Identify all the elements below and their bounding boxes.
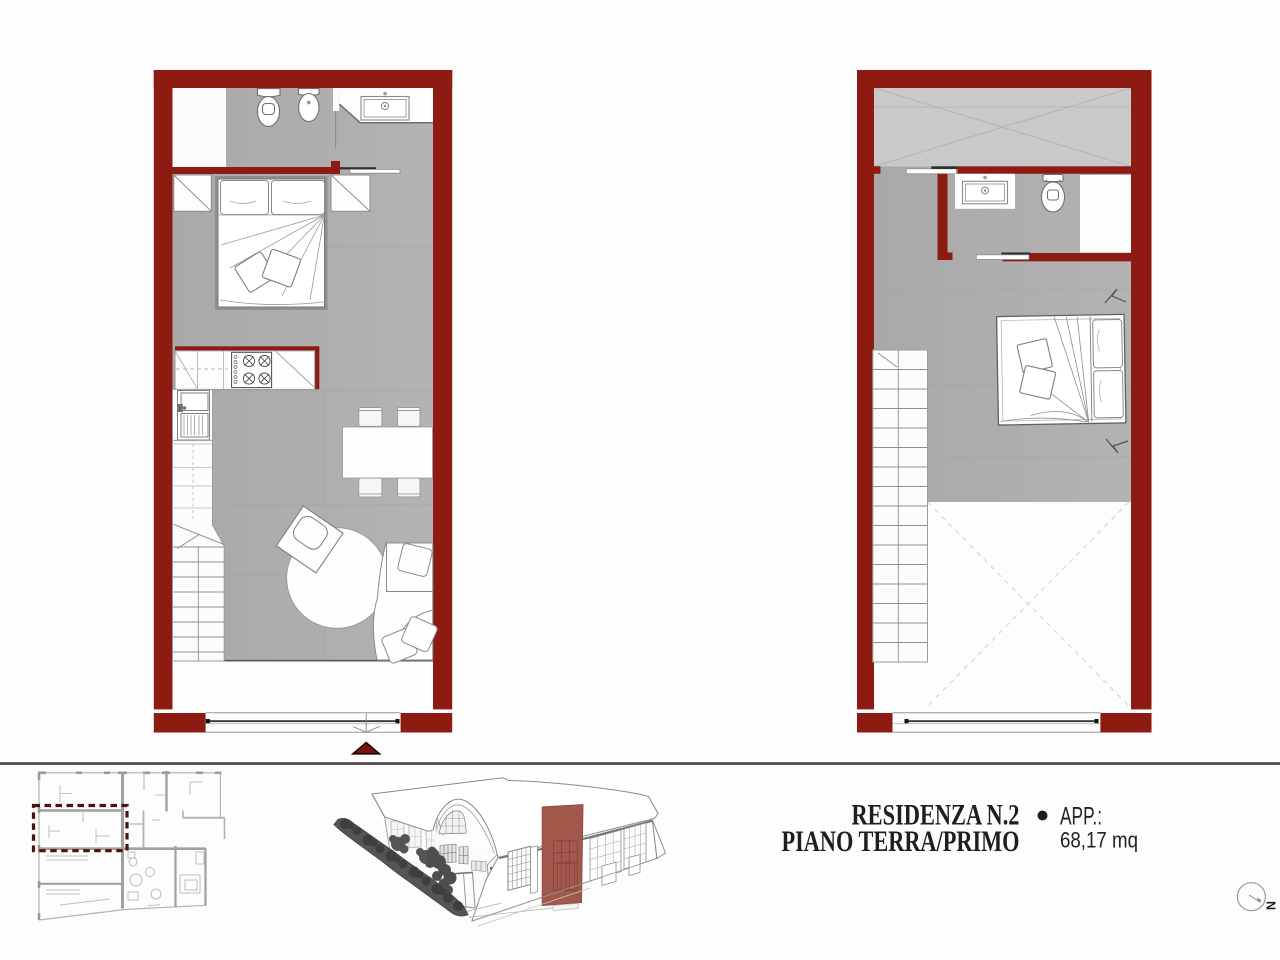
svg-text:APP.:: APP.: — [1060, 803, 1102, 831]
svg-text:N: N — [1264, 901, 1278, 910]
svg-text:68,17 mq: 68,17 mq — [1060, 828, 1138, 853]
svg-text:PIANO TERRA/PRIMO: PIANO TERRA/PRIMO — [782, 825, 1020, 858]
